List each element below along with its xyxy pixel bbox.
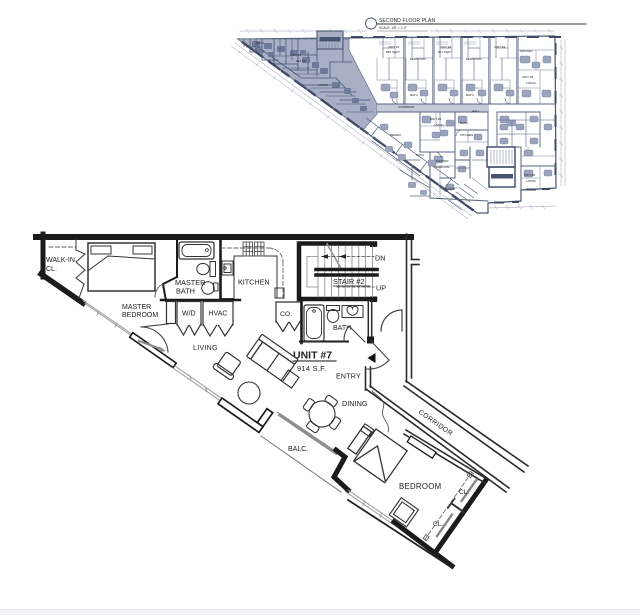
- svg-text:LIVING: LIVING: [318, 83, 329, 87]
- svg-text:BATH: BATH: [460, 121, 468, 125]
- svg-text:LIVING: LIVING: [526, 179, 537, 183]
- svg-text:BEDROOM: BEDROOM: [399, 482, 441, 491]
- svg-text:BATH: BATH: [466, 93, 474, 97]
- svg-text:MASTER: MASTER: [122, 304, 151, 311]
- svg-text:UNIT #7: UNIT #7: [293, 350, 332, 362]
- svg-text:SECOND FLOOR PLAN: SECOND FLOOR PLAN: [379, 18, 435, 24]
- svg-text:UNIT #4: UNIT #4: [494, 45, 505, 49]
- svg-text:BEDROOM: BEDROOM: [122, 312, 158, 319]
- svg-text:BALC.: BALC.: [288, 446, 308, 453]
- svg-text:SCALE: 1/8" = 1'-0": SCALE: 1/8" = 1'-0": [379, 26, 407, 30]
- svg-text:BATH: BATH: [410, 93, 418, 97]
- svg-text:WALK-IN: WALK-IN: [46, 257, 75, 264]
- svg-text:CORRIDOR: CORRIDOR: [398, 105, 415, 109]
- svg-text:KITCHEN: KITCHEN: [460, 133, 473, 137]
- svg-text:UNIT #2: UNIT #2: [388, 45, 399, 49]
- svg-text:895 SQFT: 895 SQFT: [386, 50, 400, 54]
- svg-text:CO.: CO.: [280, 311, 292, 318]
- svg-text:ENTRY: ENTRY: [336, 373, 361, 381]
- svg-text:LIVING: LIVING: [193, 345, 218, 352]
- svg-text:HVAC: HVAC: [209, 311, 228, 318]
- svg-text:LIVING: LIVING: [434, 123, 445, 127]
- svg-text:CL.: CL.: [459, 489, 469, 496]
- svg-text:BATH: BATH: [416, 153, 424, 157]
- svg-text:CL.: CL.: [433, 521, 443, 528]
- svg-text:DN: DN: [375, 254, 385, 263]
- svg-text:914 SF: 914 SF: [296, 59, 306, 63]
- svg-text:BEDRM: BEDRM: [444, 187, 455, 191]
- svg-text:CL.: CL.: [46, 266, 57, 273]
- svg-text:BATH: BATH: [256, 41, 264, 45]
- svg-text:MASTER: MASTER: [436, 159, 449, 163]
- svg-text:UNIT #3: UNIT #3: [440, 45, 451, 49]
- svg-text:DINING: DINING: [342, 399, 368, 408]
- svg-text:STAIR #2: STAIR #2: [333, 277, 365, 286]
- svg-text:914 S.F.: 914 S.F.: [297, 364, 327, 373]
- svg-text:UNIT #5: UNIT #5: [522, 75, 533, 79]
- svg-text:UNIT #6: UNIT #6: [524, 173, 535, 177]
- svg-text:MASTER: MASTER: [520, 49, 533, 53]
- svg-text:HALL: HALL: [472, 109, 480, 113]
- svg-text:W/D: W/D: [182, 311, 196, 318]
- svg-text:BEDRM: BEDRM: [390, 133, 401, 137]
- svg-text:BATH: BATH: [176, 287, 195, 296]
- svg-text:KITCHEN: KITCHEN: [238, 278, 270, 287]
- svg-text:LIVING: LIVING: [526, 81, 537, 85]
- svg-text:UP: UP: [376, 284, 386, 293]
